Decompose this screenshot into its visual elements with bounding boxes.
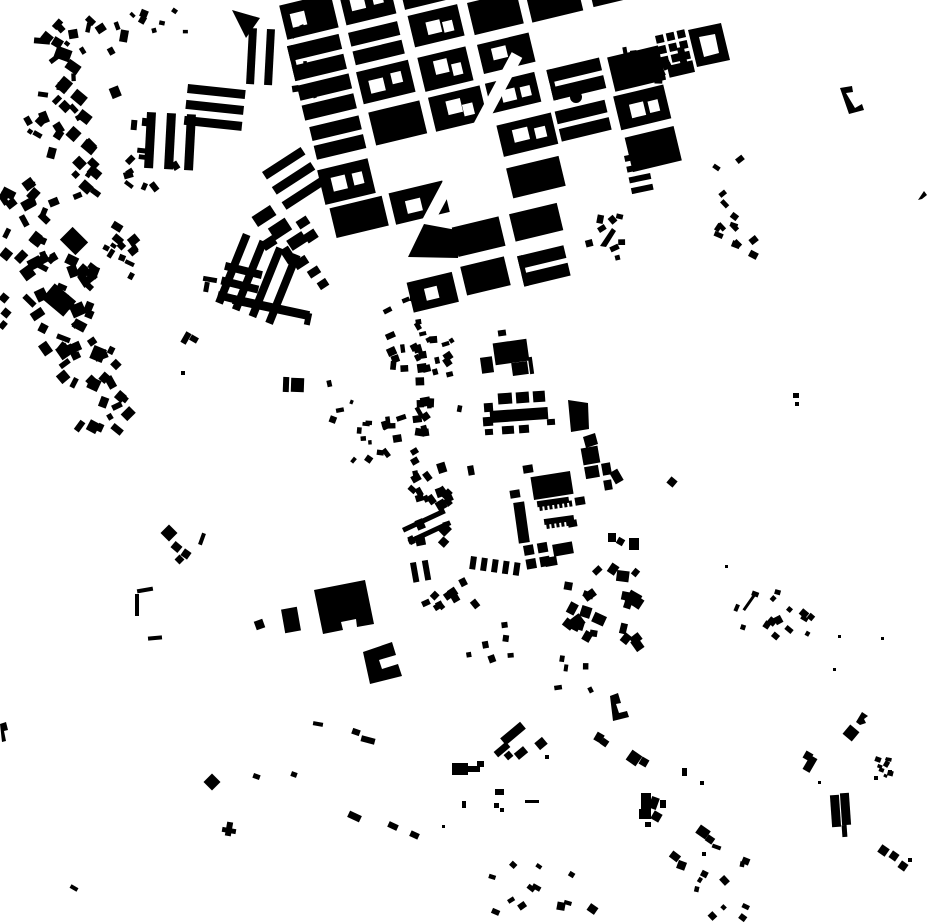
building bbox=[356, 60, 416, 104]
building bbox=[793, 393, 799, 398]
building bbox=[118, 254, 126, 262]
building bbox=[349, 400, 354, 405]
building bbox=[127, 245, 138, 256]
building bbox=[448, 337, 454, 343]
building bbox=[170, 541, 182, 553]
building bbox=[32, 130, 42, 139]
building bbox=[339, 0, 397, 25]
building bbox=[714, 231, 724, 239]
building bbox=[204, 774, 221, 791]
building bbox=[469, 556, 477, 570]
building bbox=[46, 147, 57, 160]
building bbox=[517, 901, 527, 911]
building bbox=[566, 601, 579, 615]
building bbox=[694, 886, 700, 892]
scatter-cluster bbox=[407, 462, 475, 548]
scatter-cluster bbox=[733, 589, 810, 637]
building bbox=[264, 29, 275, 85]
building bbox=[347, 811, 362, 823]
building bbox=[533, 391, 546, 403]
building bbox=[283, 377, 290, 392]
building bbox=[881, 637, 884, 640]
building bbox=[589, 630, 597, 638]
building bbox=[795, 402, 799, 406]
building bbox=[487, 654, 496, 663]
building bbox=[650, 810, 662, 822]
building bbox=[60, 227, 88, 255]
building bbox=[429, 336, 437, 344]
building bbox=[203, 282, 210, 293]
building bbox=[326, 380, 332, 387]
building bbox=[89, 345, 107, 363]
building bbox=[537, 542, 549, 554]
building bbox=[663, 59, 670, 65]
building bbox=[616, 537, 626, 547]
building bbox=[329, 196, 388, 238]
building bbox=[874, 756, 881, 763]
building bbox=[712, 164, 721, 172]
building bbox=[490, 407, 549, 423]
building bbox=[495, 789, 504, 795]
building bbox=[298, 45, 303, 49]
building bbox=[0, 247, 13, 261]
building bbox=[137, 587, 153, 594]
building bbox=[877, 844, 890, 857]
building bbox=[559, 655, 565, 662]
building bbox=[830, 795, 841, 828]
building bbox=[69, 377, 78, 389]
building bbox=[616, 570, 630, 582]
building bbox=[317, 158, 376, 205]
building bbox=[415, 377, 424, 385]
building bbox=[52, 95, 62, 105]
building bbox=[587, 686, 594, 693]
c-shaped-building bbox=[363, 642, 402, 684]
building bbox=[410, 562, 419, 583]
building bbox=[68, 103, 78, 113]
building bbox=[522, 464, 533, 473]
building bbox=[666, 476, 677, 487]
building bbox=[720, 199, 729, 208]
building bbox=[645, 64, 651, 68]
building bbox=[427, 400, 432, 409]
building bbox=[908, 858, 912, 862]
building bbox=[629, 538, 639, 550]
building bbox=[37, 322, 48, 334]
building bbox=[514, 746, 528, 760]
building bbox=[42, 283, 76, 316]
building bbox=[409, 830, 420, 839]
building bbox=[833, 668, 836, 671]
building bbox=[596, 214, 604, 224]
chevron-building-east bbox=[918, 191, 927, 200]
building bbox=[131, 120, 138, 130]
building bbox=[137, 148, 146, 154]
building bbox=[400, 365, 408, 372]
building bbox=[70, 884, 79, 891]
building bbox=[71, 170, 80, 179]
building bbox=[286, 231, 308, 251]
building bbox=[501, 622, 508, 628]
building bbox=[645, 822, 651, 827]
building bbox=[502, 635, 509, 642]
building bbox=[774, 589, 781, 595]
building bbox=[0, 320, 8, 330]
row-buildings bbox=[410, 560, 431, 583]
building bbox=[183, 30, 188, 34]
building bbox=[569, 500, 573, 506]
building bbox=[591, 612, 607, 627]
building bbox=[432, 368, 439, 375]
building bbox=[303, 61, 307, 66]
building bbox=[38, 91, 49, 97]
building bbox=[840, 793, 851, 826]
building bbox=[874, 776, 878, 780]
building bbox=[107, 346, 116, 355]
building bbox=[629, 173, 652, 183]
building bbox=[290, 771, 297, 778]
building bbox=[625, 126, 682, 172]
building bbox=[387, 821, 399, 831]
building bbox=[252, 205, 277, 227]
building bbox=[14, 249, 29, 264]
building bbox=[360, 735, 375, 744]
building bbox=[460, 256, 511, 295]
building bbox=[619, 623, 628, 635]
scatter-cluster bbox=[712, 155, 759, 260]
building bbox=[421, 599, 431, 608]
building bbox=[56, 333, 71, 343]
building bbox=[564, 664, 569, 671]
building bbox=[535, 863, 542, 870]
building bbox=[400, 344, 405, 353]
building bbox=[660, 800, 666, 808]
scatter-cluster bbox=[585, 213, 625, 260]
building bbox=[72, 156, 87, 171]
building bbox=[498, 393, 513, 405]
building bbox=[615, 255, 621, 261]
building bbox=[843, 725, 860, 742]
building bbox=[410, 473, 422, 484]
building bbox=[110, 359, 122, 371]
building bbox=[142, 118, 148, 126]
building bbox=[181, 371, 185, 375]
building bbox=[480, 356, 494, 374]
building bbox=[252, 773, 260, 780]
building bbox=[574, 496, 585, 506]
building bbox=[64, 40, 71, 46]
building bbox=[511, 361, 529, 376]
scatter-cluster bbox=[669, 850, 751, 922]
building bbox=[368, 100, 427, 145]
building bbox=[76, 109, 92, 125]
building bbox=[127, 272, 135, 280]
building bbox=[441, 341, 449, 347]
building bbox=[655, 34, 665, 44]
building bbox=[124, 259, 134, 267]
chevron-building-se bbox=[856, 712, 868, 725]
building bbox=[377, 450, 385, 456]
building bbox=[462, 801, 466, 808]
round-building bbox=[570, 91, 582, 103]
building bbox=[0, 307, 11, 318]
building bbox=[246, 28, 257, 84]
building bbox=[530, 471, 573, 500]
wedge-building-small bbox=[583, 433, 598, 448]
building bbox=[79, 46, 87, 54]
building bbox=[738, 913, 747, 922]
building bbox=[568, 871, 576, 878]
building bbox=[805, 631, 811, 637]
building bbox=[502, 561, 510, 575]
building bbox=[888, 770, 892, 774]
building bbox=[581, 446, 601, 466]
building bbox=[38, 212, 51, 225]
building bbox=[525, 800, 539, 803]
building bbox=[730, 212, 739, 221]
building bbox=[307, 265, 321, 278]
building bbox=[554, 685, 562, 691]
building bbox=[457, 405, 463, 412]
building bbox=[507, 896, 515, 903]
building bbox=[631, 568, 640, 578]
building bbox=[676, 860, 687, 871]
building bbox=[198, 533, 206, 546]
building bbox=[838, 635, 841, 638]
building bbox=[98, 396, 109, 409]
building bbox=[597, 224, 607, 233]
building bbox=[735, 155, 745, 164]
building bbox=[329, 415, 338, 424]
building bbox=[402, 297, 411, 304]
building bbox=[410, 447, 419, 456]
building bbox=[467, 0, 524, 35]
building bbox=[733, 604, 739, 612]
building bbox=[368, 440, 372, 445]
building bbox=[494, 803, 499, 808]
building bbox=[608, 215, 618, 225]
building bbox=[682, 768, 687, 776]
building bbox=[725, 565, 728, 568]
building bbox=[770, 595, 777, 602]
building bbox=[430, 591, 440, 601]
building bbox=[383, 306, 393, 314]
building bbox=[80, 139, 97, 156]
building bbox=[586, 0, 645, 7]
building bbox=[392, 434, 402, 443]
building bbox=[483, 417, 494, 427]
building bbox=[491, 559, 499, 573]
building bbox=[171, 7, 178, 14]
building bbox=[66, 264, 79, 279]
building bbox=[630, 50, 637, 56]
building bbox=[470, 599, 481, 610]
building bbox=[654, 79, 662, 83]
building bbox=[480, 558, 488, 572]
building bbox=[121, 406, 136, 421]
building bbox=[281, 607, 301, 633]
building bbox=[493, 339, 530, 366]
building bbox=[22, 294, 36, 308]
building bbox=[351, 728, 361, 736]
building bbox=[58, 100, 71, 113]
building bbox=[718, 190, 727, 198]
scatter-cluster bbox=[562, 562, 645, 652]
building bbox=[467, 465, 475, 476]
building bbox=[509, 861, 517, 869]
building bbox=[509, 203, 563, 242]
building bbox=[639, 809, 651, 819]
building bbox=[336, 407, 345, 413]
building bbox=[135, 594, 139, 616]
scatter-cluster bbox=[102, 221, 140, 281]
building bbox=[407, 485, 417, 495]
building bbox=[842, 825, 848, 837]
building bbox=[412, 415, 422, 423]
building bbox=[417, 363, 428, 373]
building bbox=[712, 844, 722, 851]
building bbox=[303, 94, 307, 98]
scatter-cluster bbox=[40, 15, 122, 105]
building bbox=[410, 293, 415, 301]
building bbox=[187, 84, 246, 99]
building bbox=[110, 242, 117, 249]
building bbox=[360, 436, 366, 441]
building bbox=[771, 631, 780, 640]
building bbox=[500, 808, 504, 812]
row-buildings bbox=[469, 556, 520, 576]
building bbox=[545, 755, 549, 759]
building bbox=[313, 721, 324, 727]
building bbox=[897, 860, 908, 871]
building bbox=[720, 904, 727, 911]
building bbox=[491, 908, 500, 916]
building bbox=[740, 624, 746, 630]
building bbox=[422, 560, 431, 581]
building bbox=[697, 877, 703, 884]
scatter-cluster bbox=[488, 861, 575, 916]
building bbox=[385, 331, 396, 340]
building bbox=[702, 852, 706, 856]
building bbox=[534, 737, 547, 750]
building bbox=[0, 292, 10, 303]
building bbox=[446, 371, 454, 377]
building bbox=[620, 632, 633, 645]
building bbox=[48, 197, 60, 208]
building bbox=[564, 581, 573, 590]
building bbox=[55, 76, 73, 94]
building bbox=[74, 420, 86, 433]
building bbox=[109, 85, 122, 99]
building bbox=[528, 357, 534, 374]
building bbox=[502, 426, 515, 435]
building bbox=[85, 22, 91, 32]
bent-building-west bbox=[0, 722, 8, 742]
building bbox=[415, 494, 425, 503]
building bbox=[498, 329, 507, 336]
building bbox=[30, 307, 46, 321]
building bbox=[161, 525, 178, 542]
building bbox=[585, 239, 594, 247]
building bbox=[603, 479, 613, 490]
building bbox=[73, 192, 83, 200]
building bbox=[279, 0, 338, 40]
building bbox=[141, 182, 148, 191]
building bbox=[107, 46, 116, 55]
building bbox=[523, 544, 535, 556]
building bbox=[609, 244, 619, 253]
building bbox=[484, 403, 494, 413]
building bbox=[519, 425, 530, 434]
building bbox=[385, 416, 390, 422]
row-buildings bbox=[246, 28, 275, 85]
building bbox=[784, 625, 793, 634]
map-canvas bbox=[0, 0, 930, 924]
building bbox=[151, 28, 157, 34]
building bbox=[159, 20, 165, 25]
building bbox=[396, 414, 407, 422]
building bbox=[547, 419, 555, 426]
building bbox=[666, 32, 676, 42]
building bbox=[317, 278, 330, 290]
building bbox=[410, 456, 420, 465]
l-shaped-building-south bbox=[610, 693, 629, 721]
building bbox=[59, 358, 71, 369]
building bbox=[180, 331, 191, 344]
building bbox=[525, 558, 537, 570]
building bbox=[587, 903, 599, 915]
scatter-cluster bbox=[466, 622, 514, 664]
scatter-cluster bbox=[421, 577, 480, 611]
building bbox=[452, 763, 468, 775]
building bbox=[254, 619, 266, 631]
building bbox=[415, 534, 426, 546]
building bbox=[27, 128, 34, 134]
row-buildings bbox=[262, 147, 325, 210]
building bbox=[466, 652, 472, 658]
building bbox=[818, 781, 821, 784]
building bbox=[110, 423, 123, 436]
building bbox=[436, 462, 447, 474]
city-footprint-map bbox=[0, 0, 930, 924]
building bbox=[509, 489, 520, 498]
building bbox=[525, 0, 584, 23]
zigzag-building-ne bbox=[840, 86, 864, 114]
building bbox=[618, 239, 625, 245]
building bbox=[700, 870, 709, 879]
building bbox=[556, 901, 565, 910]
wedge-building bbox=[568, 400, 589, 432]
building bbox=[422, 471, 433, 482]
building bbox=[106, 413, 114, 421]
building bbox=[631, 184, 654, 194]
building bbox=[23, 115, 33, 126]
building bbox=[292, 85, 300, 92]
building bbox=[592, 565, 603, 576]
building bbox=[676, 29, 686, 39]
building bbox=[70, 89, 88, 106]
building bbox=[667, 60, 695, 78]
building bbox=[500, 722, 526, 746]
building bbox=[516, 392, 530, 404]
building bbox=[442, 825, 445, 828]
building bbox=[125, 154, 136, 165]
building bbox=[504, 751, 514, 761]
building bbox=[291, 378, 304, 392]
scatter-cluster bbox=[377, 411, 431, 477]
building bbox=[700, 781, 704, 785]
building bbox=[185, 100, 244, 115]
